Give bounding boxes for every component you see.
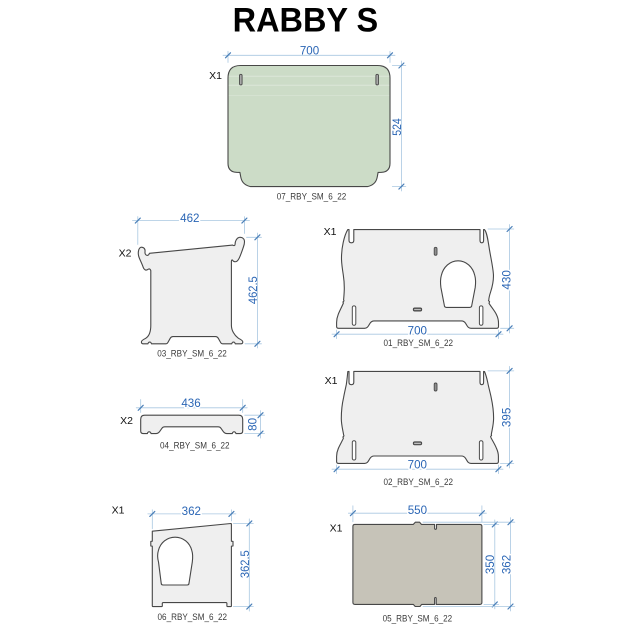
svg-text:700: 700	[408, 459, 427, 472]
svg-text:06_RBY_SM_6_22: 06_RBY_SM_6_22	[158, 612, 228, 623]
svg-text:X1: X1	[330, 523, 343, 535]
svg-text:02_RBY_SM_6_22: 02_RBY_SM_6_22	[384, 477, 454, 488]
svg-text:80: 80	[247, 418, 260, 431]
svg-text:07_RBY_SM_6_22: 07_RBY_SM_6_22	[277, 192, 347, 203]
svg-text:436: 436	[181, 397, 200, 410]
svg-text:395: 395	[500, 408, 513, 427]
svg-text:04_RBY_SM_6_22: 04_RBY_SM_6_22	[160, 440, 230, 451]
svg-text:524: 524	[391, 118, 404, 136]
svg-text:X1: X1	[209, 70, 222, 82]
svg-text:X1: X1	[325, 375, 338, 387]
svg-text:462.5: 462.5	[247, 276, 260, 304]
svg-text:350: 350	[484, 555, 497, 574]
svg-text:X2: X2	[119, 248, 132, 260]
svg-text:RABBY S: RABBY S	[233, 1, 379, 39]
svg-text:700: 700	[408, 325, 427, 338]
svg-text:01_RBY_SM_6_22: 01_RBY_SM_6_22	[384, 338, 454, 349]
svg-text:03_RBY_SM_6_22: 03_RBY_SM_6_22	[157, 348, 227, 359]
svg-text:700: 700	[300, 45, 319, 58]
svg-text:462: 462	[180, 212, 199, 225]
svg-text:362: 362	[501, 555, 514, 574]
svg-text:05_RBY_SM_6_22: 05_RBY_SM_6_22	[383, 613, 453, 624]
svg-text:X2: X2	[120, 415, 133, 427]
svg-text:X1: X1	[324, 226, 337, 238]
svg-text:430: 430	[500, 270, 513, 289]
svg-text:362: 362	[182, 505, 201, 518]
svg-text:362.5: 362.5	[239, 550, 252, 578]
svg-text:X1: X1	[112, 505, 125, 517]
svg-text:550: 550	[408, 504, 427, 517]
